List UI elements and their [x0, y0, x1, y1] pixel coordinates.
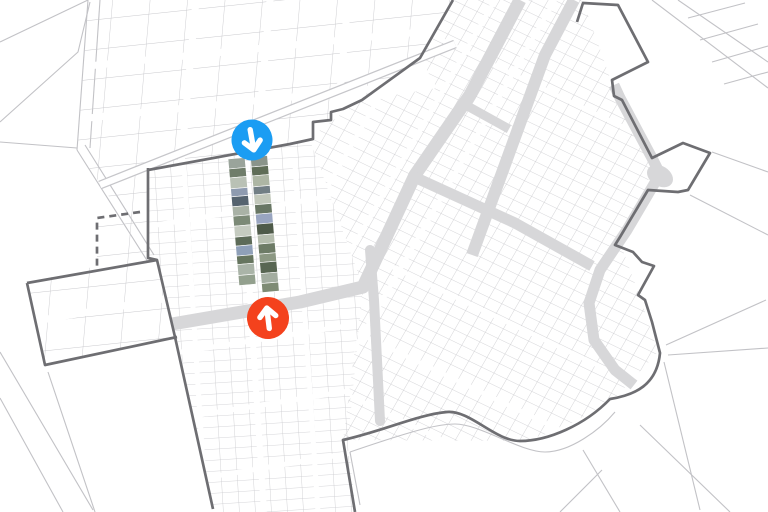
- map-canvas[interactable]: [0, 0, 768, 512]
